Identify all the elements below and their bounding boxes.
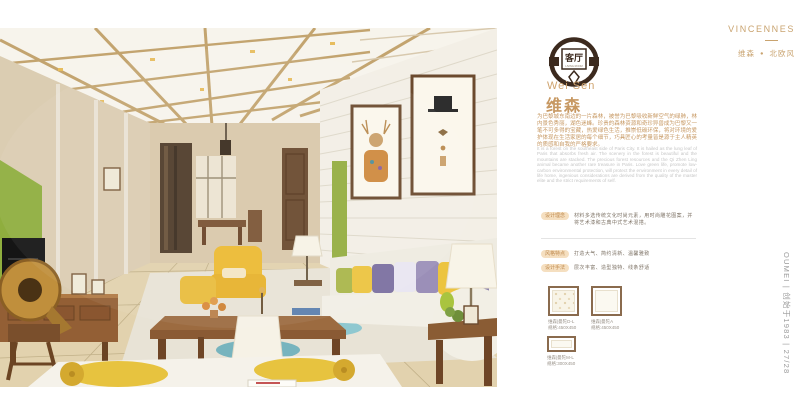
spec-row-concept: 设计理念 材料多选传统文化时尚元素，用时尚雕花图案，并将艺术漆和古典中式艺术混搭… bbox=[541, 212, 697, 226]
badge-sub-label: LIVING ROOM bbox=[565, 64, 582, 68]
spec-row-style: 风格特点 打造大气、简约清新、温馨雅致 bbox=[541, 250, 697, 258]
living-room-photo bbox=[0, 28, 497, 387]
intro-paragraph-cn: 为巴黎城东南边的一片森林，被誉为巴黎吸收新鲜空气的绿肺，林内景色秀丽，湖色迷峰。… bbox=[537, 114, 697, 149]
swatch-caption: 维森|曼陀D-L 规格:450X450 bbox=[548, 319, 576, 330]
tag-collection: 维森 bbox=[738, 49, 755, 58]
panel-swatch-floral bbox=[548, 286, 579, 316]
spec-text: 材料多选传统文化时尚元素，用时尚雕花图案，并将艺术漆和古典中式艺术混搭。 bbox=[574, 212, 697, 226]
section-divider bbox=[541, 238, 696, 239]
spec-text: 打造大气、简约清新、温馨雅致 bbox=[574, 250, 650, 258]
footer-vertical-text: OUMEI | 创始于1983 | 27/28 bbox=[781, 252, 792, 374]
panel-swatch-plain bbox=[591, 286, 622, 316]
swatch-name: 维森|曼陀M-L bbox=[547, 355, 575, 361]
swatch-caption: 维森|曼陀A 规格:450X450 bbox=[591, 319, 619, 330]
panel-swatch-wide bbox=[547, 336, 576, 352]
spec-pill: 设计理念 bbox=[541, 212, 569, 220]
intro-paragraph-en: It is a forest on the southeast side of … bbox=[537, 146, 697, 184]
brand-divider bbox=[765, 40, 778, 41]
photo-frame bbox=[464, 306, 478, 324]
product-title-cn: 维森 bbox=[546, 92, 582, 116]
swatch-size: 规格:450X450 bbox=[591, 325, 619, 331]
brand-wordmark: VINCENNES bbox=[690, 24, 795, 34]
spec-row-technique: 设计手法 层次丰富、造型独特、线条舒适 bbox=[541, 264, 697, 272]
swatch-size: 规格:300X450 bbox=[547, 361, 575, 367]
page-tags: 维森 ● 北欧风 bbox=[690, 48, 795, 59]
swatch-size: 规格:450X450 bbox=[548, 325, 576, 331]
tag-category: 北欧风 bbox=[770, 49, 796, 58]
product-title-en: Wei Sen bbox=[547, 80, 595, 92]
spec-pill: 设计手法 bbox=[541, 264, 569, 272]
swatch-name: 维森|曼陀D-L bbox=[548, 319, 576, 325]
catalog-page: 客厅 LIVING ROOM Wei Sen 维森 为巴黎城东南边的一片森林，被… bbox=[0, 0, 800, 404]
tag-dot-icon: ● bbox=[758, 51, 766, 57]
badge-room-label: 客厅 bbox=[564, 52, 583, 63]
swatch-caption: 维森|曼陀M-L 规格:300X450 bbox=[547, 355, 575, 366]
spec-text: 层次丰富、造型独特、线条舒适 bbox=[574, 264, 650, 272]
spec-pill: 风格特点 bbox=[541, 250, 569, 258]
